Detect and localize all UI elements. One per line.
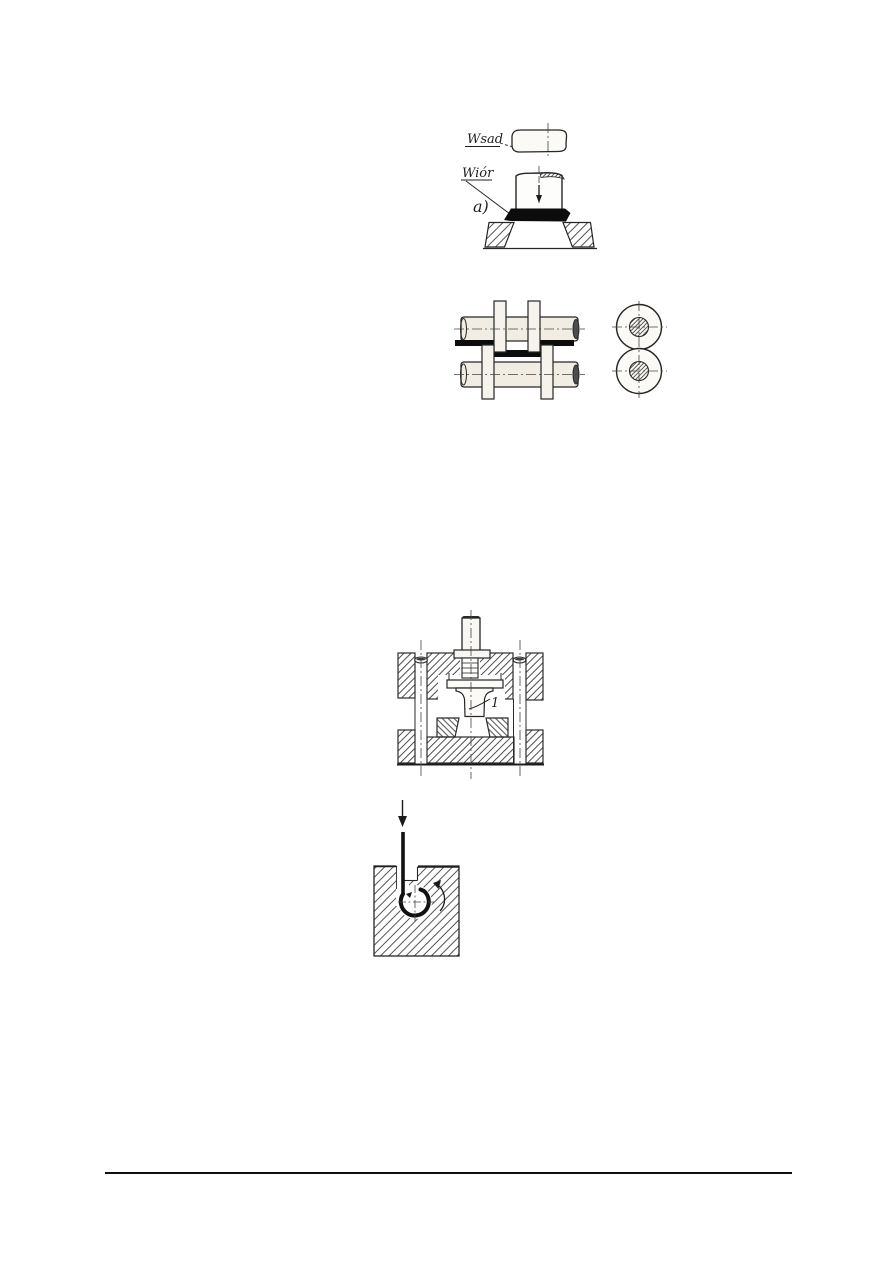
figure-upsetting-drawing: Wsad Wiór a)	[450, 112, 610, 257]
wsad-label: Wsad	[467, 132, 503, 147]
die-inserts	[437, 718, 508, 737]
bottom-plate-group	[397, 730, 544, 765]
die-block-right	[563, 223, 594, 248]
die-cross-section	[483, 223, 597, 249]
top-plate-left-wing	[398, 653, 415, 698]
document-page: Wsad Wiór a)	[0, 0, 893, 1263]
billet-cylinder	[516, 166, 564, 209]
wior-label: Wiór	[462, 166, 494, 181]
billet-disc	[512, 123, 567, 158]
punch	[456, 688, 493, 717]
pillar-head-right-shadow	[515, 658, 524, 661]
feed-arrow-icon	[398, 800, 407, 827]
top-plate-right-wing	[526, 653, 543, 700]
upper-blade-left	[494, 301, 506, 352]
shank-flange	[454, 650, 490, 658]
punch-number-label: 1	[491, 696, 499, 711]
footer-rule	[105, 1172, 792, 1174]
chip-band	[504, 209, 571, 222]
roll-side-view	[454, 301, 585, 399]
roll-end-view	[612, 301, 667, 398]
figure-die-set-drawing: 1	[390, 605, 555, 785]
die-block-left	[485, 223, 514, 248]
bottom-foot-right	[526, 730, 543, 763]
sheet-strip	[455, 340, 574, 357]
bottom-plate	[427, 737, 514, 763]
punch-holder	[447, 680, 503, 688]
die-insert-left	[437, 718, 459, 737]
variant-a-label: a)	[473, 197, 489, 216]
lower-blade-left	[482, 345, 494, 399]
upper-blade-right	[528, 301, 540, 352]
die-insert-right	[486, 718, 508, 737]
lower-blade-right	[541, 345, 553, 399]
wsad-label-group: Wsad	[465, 132, 513, 147]
figure-slitting-rolls-drawing	[450, 290, 690, 405]
figure-chip-curl-drawing	[365, 795, 470, 965]
bottom-foot-left	[398, 730, 415, 763]
